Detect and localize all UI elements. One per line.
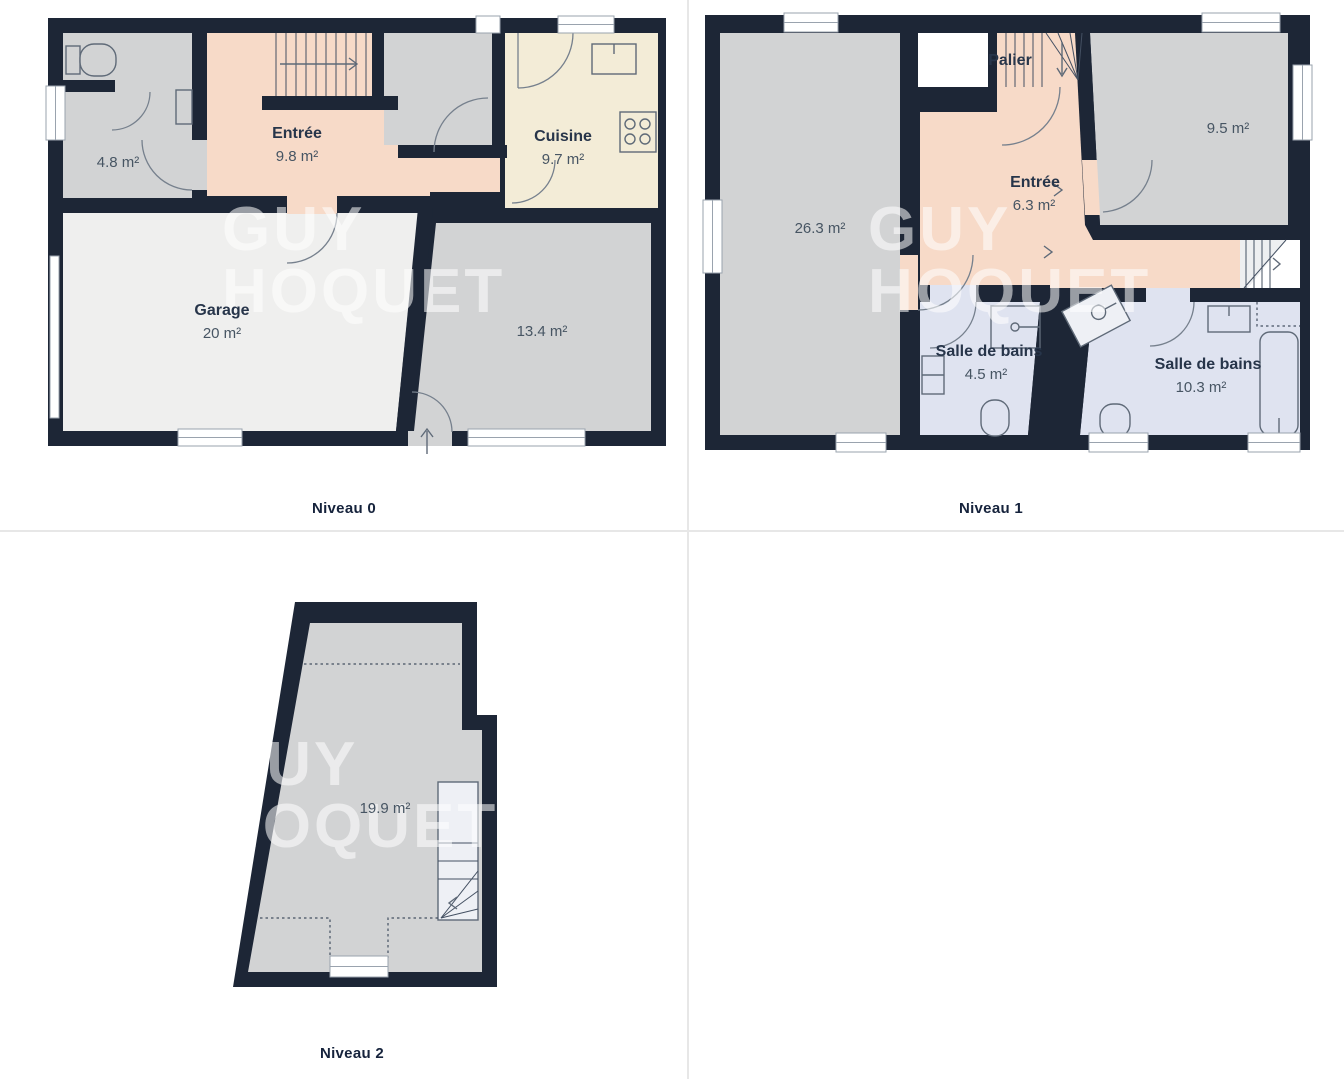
radiator-icon: [176, 90, 192, 124]
watermark-line1: GUY: [868, 195, 1011, 264]
label-cuisine-name: Cuisine: [534, 128, 592, 145]
label-entree-name: Entrée: [1010, 174, 1060, 191]
watermark-line2: HOQUET: [222, 257, 505, 326]
caption-level2: Niveau 2: [16, 1045, 688, 1062]
label-attic-area: 19.9 m²: [360, 800, 411, 817]
floorplan-page: GUY HOQUET 4.8 m² Entrée 9.8 m² Cuisine …: [0, 0, 1344, 1079]
door-gap-wc: [192, 140, 207, 190]
vertical-divider: [687, 0, 689, 1079]
label-garage-area: 20 m²: [203, 325, 241, 342]
panel-level0: GUY HOQUET 4.8 m² Entrée 9.8 m² Cuisine …: [0, 0, 688, 531]
floorplan-level2: GUY HOQUET 19.9 m²: [0, 531, 688, 1079]
watermark-line2: HOQUET: [868, 257, 1151, 326]
caption-level0: Niveau 0: [0, 500, 688, 517]
door-gap-chambre: [1082, 160, 1100, 215]
label-sejour-area: 26.3 m²: [795, 220, 846, 237]
caption-level1: Niveau 1: [688, 500, 1294, 517]
room-vestibule-floor: [384, 33, 492, 145]
watermark-line2: HOQUET: [215, 792, 498, 861]
label-entree-area: 6.3 m²: [1013, 197, 1056, 214]
room-chambre-floor: [1090, 33, 1288, 225]
bathtub-icon: [1260, 332, 1298, 435]
label-entree-area: 9.8 m²: [276, 148, 319, 165]
label-sdb1-name: Salle de bains: [936, 343, 1043, 360]
door-gap-sdb2: [1146, 288, 1190, 302]
label-entree-name: Entrée: [272, 125, 322, 142]
label-sdb2-area: 10.3 m²: [1176, 379, 1227, 396]
panel-level2: GUY HOQUET 19.9 m² Niveau 2: [0, 531, 688, 1079]
label-134-area: 13.4 m²: [517, 323, 568, 340]
label-cuisine-area: 9.7 m²: [542, 151, 585, 168]
horizontal-divider: [0, 530, 1344, 532]
toilet-icon: [981, 400, 1009, 436]
label-sdb2-name: Salle de bains: [1155, 356, 1262, 373]
panel-level1: GUY HOQUET Palier 26.3 m² 9.5 m² Entrée …: [688, 0, 1344, 531]
label-garage-name: Garage: [194, 302, 249, 319]
floorplan-level0: GUY HOQUET 4.8 m² Entrée 9.8 m² Cuisine …: [0, 0, 688, 531]
windows: [330, 956, 388, 977]
label-sdb1-area: 4.5 m²: [965, 366, 1008, 383]
watermark-line1: GUY: [215, 730, 358, 799]
toilet-icon: [1100, 404, 1130, 437]
floorplan-level1: GUY HOQUET Palier 26.3 m² 9.5 m² Entrée …: [688, 0, 1344, 531]
label-palier-name: Palier: [988, 52, 1032, 69]
palier-void: [918, 33, 988, 87]
watermark-line1: GUY: [222, 195, 365, 264]
label-wc-area: 4.8 m²: [97, 154, 140, 171]
toilet-icon: [66, 44, 116, 76]
label-chambre-area: 9.5 m²: [1207, 120, 1250, 137]
